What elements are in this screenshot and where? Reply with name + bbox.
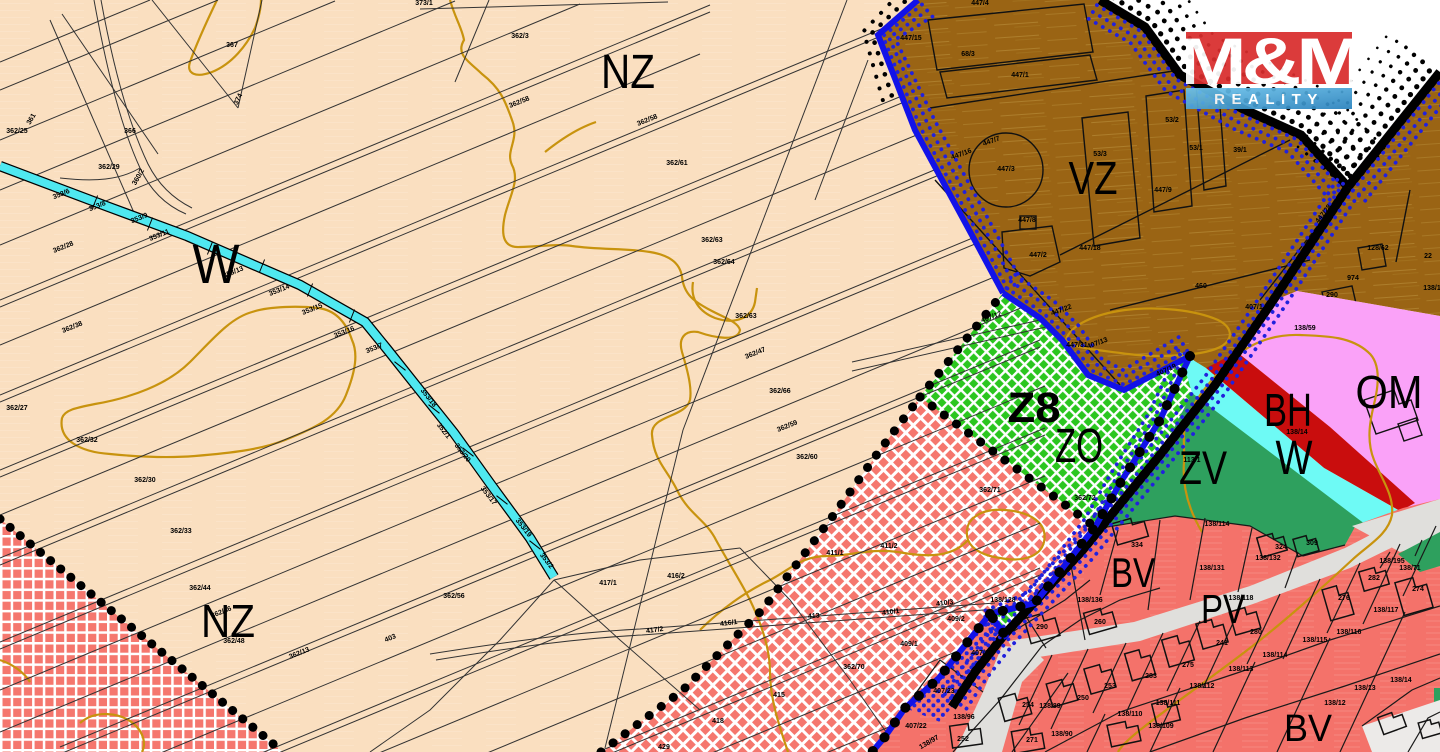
svg-text:460: 460 [1195, 283, 1207, 290]
svg-text:138/116: 138/116 [1337, 629, 1362, 636]
svg-text:BV: BV [1284, 708, 1333, 750]
svg-text:138/132: 138/132 [1255, 555, 1280, 562]
svg-text:138/131: 138/131 [1199, 565, 1224, 572]
svg-text:974: 974 [1347, 275, 1359, 282]
svg-text:309: 309 [1306, 540, 1318, 547]
svg-text:NZ: NZ [201, 595, 255, 647]
svg-text:362/29: 362/29 [98, 164, 120, 171]
svg-text:407/1: 407/1 [1245, 304, 1263, 311]
svg-text:283: 283 [1145, 673, 1157, 680]
svg-text:138/96: 138/96 [953, 714, 975, 721]
svg-text:418: 418 [712, 718, 724, 725]
svg-text:128/62: 128/62 [1367, 245, 1389, 252]
svg-text:362/60: 362/60 [796, 454, 818, 461]
svg-text:324: 324 [1275, 544, 1287, 551]
svg-text:138/12: 138/12 [1324, 700, 1346, 707]
svg-text:138/114: 138/114 [1263, 652, 1288, 659]
svg-text:138/13: 138/13 [1354, 685, 1376, 692]
svg-text:39/1: 39/1 [1233, 147, 1247, 154]
svg-text:VZ: VZ [1069, 152, 1118, 204]
svg-text:362/64: 362/64 [713, 259, 735, 266]
svg-text:138/117: 138/117 [1374, 607, 1399, 614]
svg-text:53/1: 53/1 [1189, 145, 1203, 152]
svg-text:REALITY: REALITY [1214, 91, 1324, 108]
svg-text:407/22: 407/22 [905, 723, 927, 730]
svg-text:PV: PV [1201, 586, 1246, 632]
svg-text:415: 415 [773, 692, 785, 699]
svg-text:253: 253 [1104, 683, 1116, 690]
svg-text:362/30: 362/30 [134, 477, 156, 484]
svg-text:250: 250 [1077, 695, 1089, 702]
svg-text:362/56: 362/56 [443, 593, 465, 600]
svg-text:373/1: 373/1 [415, 0, 433, 7]
svg-text:ZV: ZV [1179, 441, 1228, 494]
svg-text:138/136: 138/136 [1077, 597, 1102, 604]
svg-text:68/3: 68/3 [961, 51, 975, 58]
svg-text:447/18: 447/18 [1079, 245, 1101, 252]
svg-text:447/9: 447/9 [1154, 187, 1172, 194]
svg-text:290: 290 [1036, 624, 1048, 631]
svg-text:409/2: 409/2 [947, 616, 965, 623]
svg-text:138/1: 138/1 [1423, 285, 1440, 292]
svg-text:411/1: 411/1 [826, 550, 843, 557]
svg-text:53/2: 53/2 [1165, 117, 1179, 124]
svg-text:138/114: 138/114 [1205, 521, 1230, 528]
svg-text:362/71: 362/71 [979, 487, 1001, 494]
svg-text:138/90: 138/90 [1051, 731, 1073, 738]
svg-text:22: 22 [1424, 253, 1432, 260]
svg-text:271: 271 [1026, 737, 1038, 744]
svg-text:447/31: 447/31 [1066, 342, 1088, 349]
svg-text:260: 260 [1094, 619, 1106, 626]
svg-text:416/2: 416/2 [667, 573, 685, 580]
svg-text:407/3: 407/3 [971, 650, 989, 657]
svg-text:138/71: 138/71 [1399, 565, 1421, 572]
svg-text:274: 274 [1412, 586, 1424, 593]
svg-text:Z8: Z8 [1008, 384, 1061, 432]
svg-text:138/112: 138/112 [1190, 683, 1215, 690]
svg-text:362/32: 362/32 [76, 437, 98, 444]
svg-text:OM: OM [1356, 366, 1423, 418]
svg-text:290: 290 [1326, 292, 1338, 299]
svg-text:362/63: 362/63 [735, 313, 757, 320]
svg-text:447/3: 447/3 [997, 166, 1015, 173]
svg-text:138/89: 138/89 [1039, 703, 1061, 710]
svg-text:NZ: NZ [601, 46, 655, 99]
svg-text:362/33: 362/33 [170, 528, 192, 535]
svg-text:W: W [193, 232, 240, 295]
svg-text:ZO: ZO [1055, 420, 1103, 473]
svg-text:447/8: 447/8 [1018, 217, 1036, 224]
svg-text:138/111: 138/111 [1156, 700, 1181, 707]
svg-text:138/14: 138/14 [1390, 677, 1412, 684]
svg-text:138/110: 138/110 [1118, 711, 1143, 718]
svg-text:429: 429 [658, 744, 670, 751]
svg-text:413: 413 [808, 613, 820, 621]
svg-text:407/23: 407/23 [933, 688, 955, 695]
svg-text:252: 252 [957, 736, 969, 743]
svg-text:276: 276 [1338, 595, 1350, 602]
svg-text:280: 280 [1250, 629, 1262, 636]
svg-text:447/15: 447/15 [900, 35, 922, 42]
svg-text:366: 366 [124, 128, 136, 135]
svg-text:362/3: 362/3 [511, 33, 529, 40]
svg-text:409/1: 409/1 [900, 641, 918, 648]
svg-text:138/109: 138/109 [1148, 723, 1173, 730]
svg-text:362/70: 362/70 [843, 664, 865, 671]
svg-text:362/72: 362/72 [1074, 495, 1096, 502]
svg-text:241: 241 [1216, 640, 1228, 647]
svg-text:362/44: 362/44 [189, 585, 211, 592]
svg-text:334: 334 [1131, 542, 1143, 549]
svg-text:W: W [1276, 432, 1314, 485]
svg-text:447/4: 447/4 [971, 0, 989, 7]
svg-text:138/59: 138/59 [1294, 325, 1316, 332]
svg-text:362/27: 362/27 [6, 405, 28, 412]
svg-text:275: 275 [1182, 662, 1194, 669]
svg-text:BH: BH [1264, 384, 1312, 436]
svg-text:447/1: 447/1 [1011, 72, 1029, 79]
svg-text:362/63: 362/63 [701, 237, 723, 244]
svg-text:254: 254 [1022, 702, 1034, 709]
svg-text:138/115: 138/115 [1303, 637, 1328, 644]
svg-text:362/25: 362/25 [6, 128, 28, 135]
svg-text:282: 282 [1368, 575, 1380, 582]
svg-text:367: 367 [226, 42, 238, 49]
svg-text:362/66: 362/66 [769, 388, 791, 395]
svg-text:362/61: 362/61 [666, 160, 688, 167]
svg-text:138/128: 138/128 [990, 597, 1015, 604]
svg-text:417/1: 417/1 [599, 580, 617, 587]
svg-text:411/2: 411/2 [880, 543, 897, 550]
svg-text:138/113: 138/113 [1229, 666, 1254, 673]
svg-text:447/2: 447/2 [1029, 252, 1047, 259]
svg-text:138/195: 138/195 [1379, 558, 1404, 565]
svg-text:BV: BV [1111, 549, 1155, 596]
